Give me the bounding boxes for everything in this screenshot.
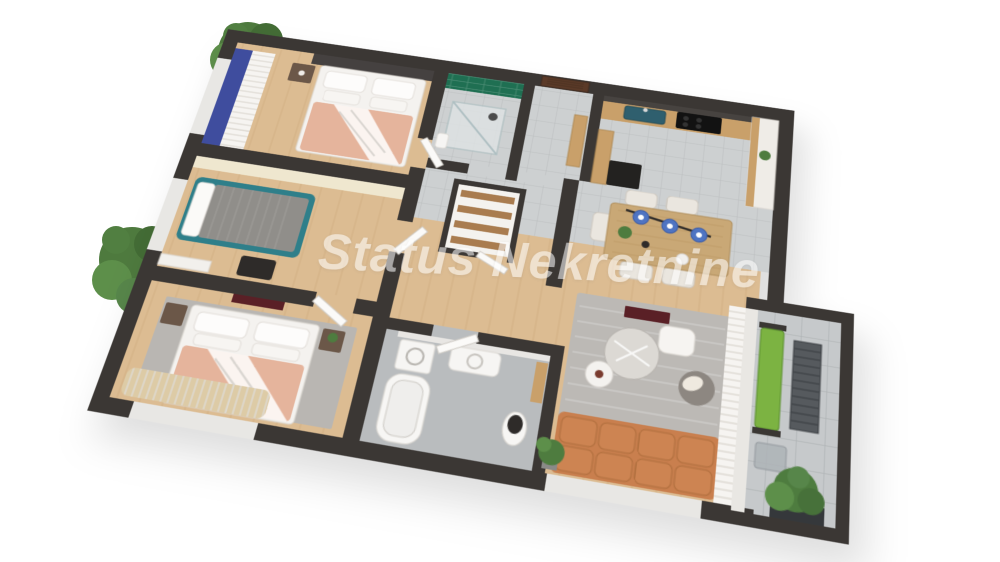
balcony-table — [790, 341, 822, 434]
washing-machine — [394, 339, 436, 374]
side-table — [754, 442, 786, 473]
apartment-floorplan — [87, 29, 858, 544]
shower-enclosure — [442, 101, 506, 154]
pouf — [658, 325, 696, 358]
floorplan-scene: Status Nekretnine — [0, 0, 1000, 562]
black-cabinet — [606, 160, 642, 189]
